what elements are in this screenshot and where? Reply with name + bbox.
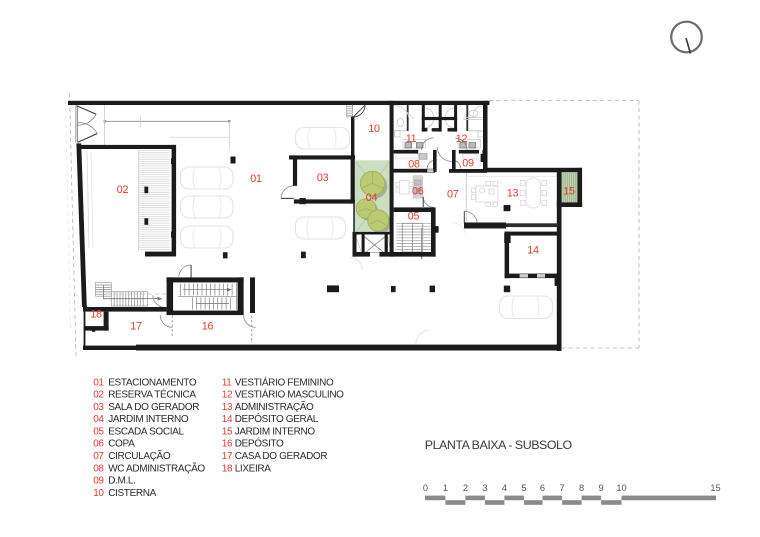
svg-text:11: 11: [222, 377, 232, 388]
svg-text:03: 03: [93, 402, 104, 413]
svg-text:09: 09: [93, 476, 104, 487]
svg-text:06: 06: [412, 185, 424, 197]
svg-text:02: 02: [93, 390, 104, 401]
svg-text:12: 12: [222, 390, 233, 401]
svg-text:16: 16: [222, 439, 233, 450]
svg-text:DEPÓSITO: DEPÓSITO: [235, 437, 284, 450]
svg-text:10: 10: [616, 483, 626, 493]
svg-text:2: 2: [463, 483, 468, 493]
svg-text:14: 14: [222, 414, 233, 425]
svg-text:04: 04: [93, 414, 104, 425]
svg-text:ESTACIONAMENTO: ESTACIONAMENTO: [108, 377, 197, 388]
svg-text:12: 12: [456, 133, 468, 145]
svg-text:05: 05: [408, 211, 420, 223]
svg-text:04: 04: [366, 192, 378, 204]
svg-text:WC ADMINISTRAÇÃO: WC ADMINISTRAÇÃO: [108, 461, 205, 474]
svg-text:SALA DO GERADOR: SALA DO GERADOR: [108, 402, 199, 413]
svg-text:07: 07: [93, 451, 104, 462]
svg-text:JARDIM INTERNO: JARDIM INTERNO: [108, 414, 189, 425]
svg-text:06: 06: [93, 439, 104, 450]
svg-text:10: 10: [93, 488, 104, 499]
svg-text:0: 0: [423, 483, 428, 493]
svg-text:PLANTA BAIXA - SUBSOLO: PLANTA BAIXA - SUBSOLO: [425, 438, 573, 452]
svg-text:17: 17: [130, 321, 142, 333]
svg-text:COPA: COPA: [108, 439, 135, 450]
svg-text:CISTERNA: CISTERNA: [108, 488, 156, 499]
svg-text:VESTIÁRIO MASCULINO: VESTIÁRIO MASCULINO: [235, 388, 344, 401]
svg-text:02: 02: [117, 184, 129, 196]
svg-text:03: 03: [317, 172, 329, 184]
svg-text:CIRCULAÇÃO: CIRCULAÇÃO: [108, 449, 171, 462]
svg-text:ESCADA SOCIAL: ESCADA SOCIAL: [108, 426, 184, 437]
svg-text:D.M.L.: D.M.L.: [108, 476, 135, 487]
svg-text:13: 13: [507, 188, 519, 200]
svg-text:01: 01: [93, 377, 104, 388]
svg-text:13: 13: [222, 402, 233, 413]
svg-text:8: 8: [579, 483, 584, 493]
svg-text:08: 08: [93, 463, 104, 474]
svg-text:LIXEIRA: LIXEIRA: [235, 463, 272, 474]
svg-text:3: 3: [482, 483, 487, 493]
svg-text:9: 9: [599, 483, 604, 493]
svg-text:VESTIÁRIO FEMININO: VESTIÁRIO FEMININO: [235, 375, 334, 388]
svg-text:RESERVA TÉCNICA: RESERVA TÉCNICA: [108, 388, 196, 401]
svg-text:10: 10: [368, 123, 380, 135]
svg-text:18: 18: [90, 309, 102, 321]
svg-text:15: 15: [222, 426, 233, 437]
svg-text:JARDIM INTERNO: JARDIM INTERNO: [235, 426, 316, 437]
svg-text:08: 08: [408, 159, 420, 171]
svg-text:07: 07: [447, 189, 459, 201]
svg-text:6: 6: [540, 483, 545, 493]
svg-text:DEPÓSITO GERAL: DEPÓSITO GERAL: [235, 412, 319, 425]
svg-text:15: 15: [563, 186, 575, 198]
svg-text:11: 11: [406, 133, 417, 145]
svg-text:09: 09: [462, 158, 474, 170]
svg-text:15: 15: [710, 483, 720, 493]
svg-text:18: 18: [222, 463, 233, 474]
svg-text:05: 05: [93, 426, 104, 437]
svg-text:16: 16: [202, 321, 214, 333]
svg-text:17: 17: [222, 451, 233, 462]
svg-text:14: 14: [527, 244, 539, 256]
svg-text:7: 7: [560, 483, 565, 493]
svg-text:1: 1: [443, 483, 448, 493]
svg-text:01: 01: [250, 173, 262, 185]
svg-text:CASA DO GERADOR: CASA DO GERADOR: [235, 451, 328, 462]
svg-text:4: 4: [502, 483, 507, 493]
svg-text:ADMINISTRAÇÃO: ADMINISTRAÇÃO: [235, 400, 314, 413]
svg-text:5: 5: [521, 483, 526, 493]
